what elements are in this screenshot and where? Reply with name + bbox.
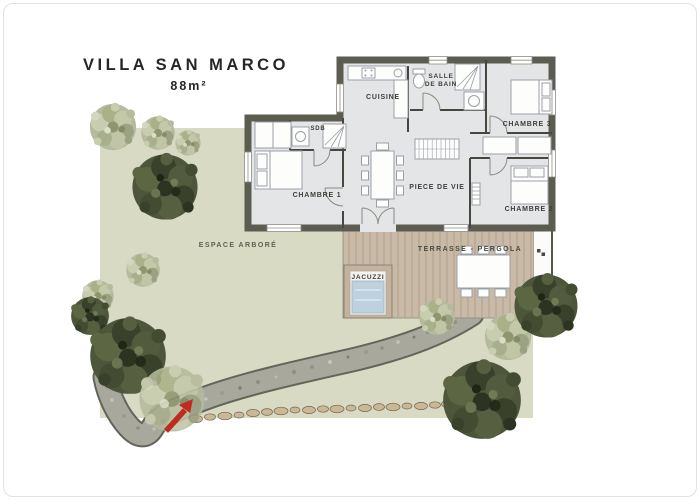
bath-sink: [464, 92, 484, 110]
terrace-table: [457, 255, 510, 288]
french-door-gap: [360, 224, 396, 232]
tree: [90, 103, 136, 150]
room-label-chambre3: CHAMBRE 3: [503, 121, 552, 128]
room-label-salle-de-bain-1: SALLE: [428, 73, 453, 80]
plan-title: VILLA SAN MARCO: [83, 56, 289, 74]
room-label-piece-de-vie: PIECE DE VIE: [409, 184, 465, 191]
toilet: [413, 69, 425, 74]
terrace-label: TERRASSE - PERGOLA: [418, 246, 522, 253]
kitchen-counter: [348, 66, 406, 80]
radiator: [472, 183, 480, 205]
espace-arbore-label: ESPACE ARBORÉ: [199, 240, 278, 249]
room-label-chambre2: CHAMBRE 2: [505, 206, 554, 213]
jacuzzi-water: [352, 281, 384, 313]
chambre1-door-gap: [340, 187, 347, 211]
tree: [141, 115, 175, 149]
floor-plan-page: JACUZZI: [0, 0, 700, 500]
plan-area: 88m²: [170, 79, 207, 93]
jacuzzi-label: JACUZZI: [351, 274, 384, 281]
jacuzzi: JACUZZI: [344, 265, 392, 318]
house: CUISINE SALLE DE BAIN SDB CHAMBRE 3 CHAM…: [245, 57, 556, 233]
room-label-salle-de-bain-2: DE BAIN: [425, 81, 457, 88]
room-label-sdb: SDB: [310, 126, 325, 132]
dining-table: [371, 151, 394, 199]
floor-plan-canvas: JACUZZI: [0, 0, 700, 500]
sdb-sink: [292, 127, 309, 146]
closet-2: [518, 137, 551, 154]
room-label-chambre1: CHAMBRE 1: [293, 192, 342, 199]
terrace-dining-set: [457, 246, 510, 297]
room-label-cuisine: CUISINE: [366, 94, 400, 101]
closet-1: [483, 137, 516, 154]
